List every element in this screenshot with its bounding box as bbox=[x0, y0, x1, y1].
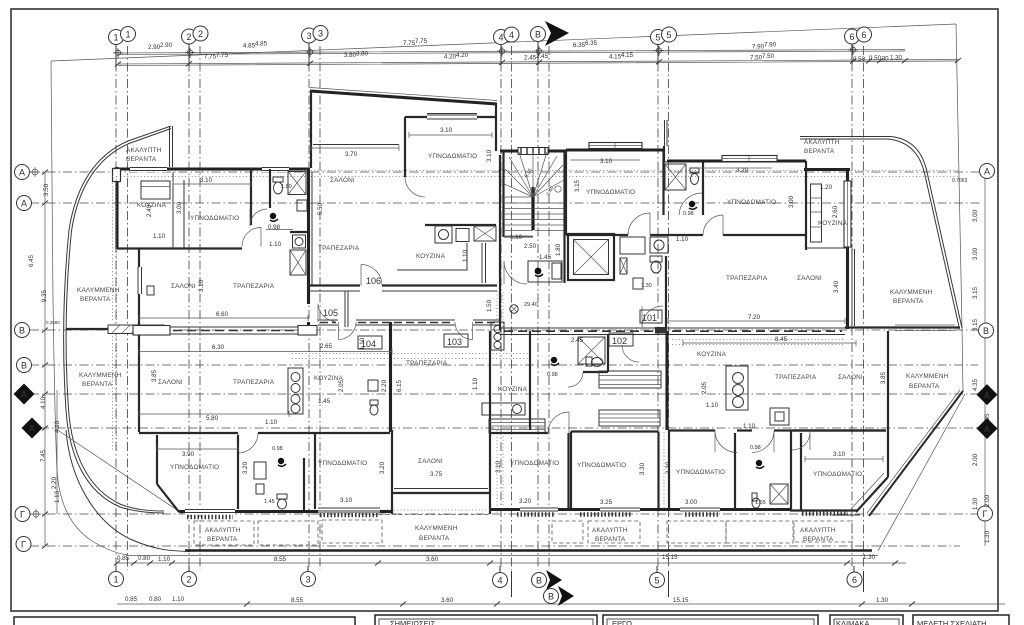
svg-text:5.50: 5.50 bbox=[317, 202, 324, 215]
svg-text:1.80: 1.80 bbox=[281, 184, 292, 190]
svg-text:8.55: 8.55 bbox=[274, 556, 287, 563]
svg-text:3.20: 3.20 bbox=[242, 461, 249, 474]
svg-text:B: B bbox=[536, 576, 542, 586]
svg-text:7.75: 7.75 bbox=[204, 54, 217, 61]
svg-text:3.15: 3.15 bbox=[972, 318, 979, 331]
svg-text:4.20: 4.20 bbox=[444, 54, 457, 61]
svg-text:7.50: 7.50 bbox=[750, 55, 763, 62]
svg-text:ΥΠΝΟΔΩΜΑΤΙΟ: ΥΠΝΟΔΩΜΑΤΙΟ bbox=[510, 460, 559, 467]
svg-text:4.20: 4.20 bbox=[456, 52, 469, 59]
svg-text:1.10: 1.10 bbox=[743, 423, 756, 430]
svg-text:29.40: 29.40 bbox=[524, 302, 538, 308]
svg-text:1.45: 1.45 bbox=[318, 398, 331, 405]
svg-text:3.80: 3.80 bbox=[344, 52, 357, 59]
svg-text:3.10: 3.10 bbox=[198, 279, 205, 292]
svg-text:ΥΠΝΟΔΩΜΑΤΙΟ: ΥΠΝΟΔΩΜΑΤΙΟ bbox=[586, 189, 635, 196]
svg-text:3.25: 3.25 bbox=[600, 499, 613, 506]
svg-text:A: A bbox=[984, 390, 990, 400]
svg-text:3.20: 3.20 bbox=[519, 498, 532, 505]
svg-text:0.50: 0.50 bbox=[853, 56, 866, 63]
svg-text:3.15: 3.15 bbox=[972, 286, 979, 299]
svg-text:B: B bbox=[19, 326, 25, 336]
svg-text:4: 4 bbox=[509, 30, 514, 40]
svg-text:ΚΑΛΥΜΜΕΝΗ: ΚΑΛΥΜΜΕΝΗ bbox=[890, 289, 933, 296]
svg-text:Γ: Γ bbox=[20, 510, 25, 520]
svg-text:ΒΕΡΑΝΤΑ: ΒΕΡΑΝΤΑ bbox=[207, 536, 238, 543]
svg-text:2.20: 2.20 bbox=[51, 476, 58, 489]
svg-text:102: 102 bbox=[612, 336, 627, 346]
svg-text:ΒΕΡΑΝΤΑ: ΒΕΡΑΝΤΑ bbox=[803, 536, 834, 543]
svg-text:1.30: 1.30 bbox=[641, 283, 652, 289]
svg-text:3.20: 3.20 bbox=[379, 461, 386, 474]
svg-text:6.30: 6.30 bbox=[212, 344, 225, 351]
svg-text:1.10: 1.10 bbox=[359, 337, 366, 350]
svg-text:6: 6 bbox=[852, 575, 857, 585]
svg-text:ΥΠΝΟΔΩΜΑΤΙΟ: ΥΠΝΟΔΩΜΑΤΙΟ bbox=[190, 215, 239, 222]
svg-text:2.90: 2.90 bbox=[148, 44, 161, 51]
svg-text:7.20: 7.20 bbox=[748, 314, 761, 321]
svg-text:ΤΡΑΠΕΖΑΡΙΑ: ΤΡΑΠΕΖΑΡΙΑ bbox=[406, 360, 448, 367]
svg-text:2.50: 2.50 bbox=[524, 243, 537, 250]
svg-text:106: 106 bbox=[366, 276, 381, 286]
svg-text:3.10: 3.10 bbox=[440, 127, 453, 134]
svg-text:1.30: 1.30 bbox=[890, 55, 903, 62]
svg-text:3.00: 3.00 bbox=[176, 201, 183, 214]
svg-text:1.50: 1.50 bbox=[486, 299, 493, 312]
svg-text:1.10: 1.10 bbox=[706, 402, 719, 409]
svg-text:2.45: 2.45 bbox=[524, 55, 537, 62]
svg-text:2.20: 2.20 bbox=[381, 379, 388, 392]
svg-text:2.00: 2.00 bbox=[984, 494, 991, 507]
svg-text:1.45: 1.45 bbox=[264, 499, 275, 505]
svg-text:7.90: 7.90 bbox=[752, 44, 765, 51]
svg-text:ΑΚΑΛΥΠΤΗ: ΑΚΑΛΥΠΤΗ bbox=[800, 527, 836, 534]
svg-text:Γ: Γ bbox=[983, 509, 988, 519]
svg-text:.30: .30 bbox=[880, 56, 889, 63]
svg-text:ΒΕΡΑΝΤΑ: ΒΕΡΑΝΤΑ bbox=[893, 298, 924, 305]
svg-text:0.80: 0.80 bbox=[138, 555, 151, 562]
svg-text:ΒΕΡΑΝΤΑ: ΒΕΡΑΝΤΑ bbox=[82, 381, 113, 388]
svg-text:8.55: 8.55 bbox=[291, 597, 304, 604]
svg-text:7.50: 7.50 bbox=[762, 53, 775, 60]
svg-text:ΥΠΝΟΔΩΜΑΤΙΟ: ΥΠΝΟΔΩΜΑΤΙΟ bbox=[813, 471, 862, 478]
svg-text:ΤΡΑΠΕΖΑΡΙΑ: ΤΡΑΠΕΖΑΡΙΑ bbox=[726, 275, 768, 282]
svg-text:0.85: 0.85 bbox=[117, 555, 130, 562]
svg-text:6.45: 6.45 bbox=[28, 254, 35, 267]
svg-text:A: A bbox=[21, 199, 27, 209]
svg-text:ΑΚΑΛΥΠΤΗ: ΑΚΑΛΥΠΤΗ bbox=[592, 527, 628, 534]
svg-text:ΒΕΡΑΝΤΑ: ΒΕΡΑΝΤΑ bbox=[595, 536, 626, 543]
svg-text:3.00: 3.00 bbox=[972, 247, 979, 260]
svg-text:3.50: 3.50 bbox=[43, 183, 50, 196]
svg-text:1.10: 1.10 bbox=[153, 233, 166, 240]
svg-text:ΤΡΑΠΕΖΑΡΙΑ: ΤΡΑΠΕΖΑΡΙΑ bbox=[775, 374, 817, 381]
svg-text:A: A bbox=[19, 168, 25, 178]
svg-text:5.80: 5.80 bbox=[206, 415, 219, 422]
svg-text:6.15: 6.15 bbox=[396, 379, 403, 392]
svg-text:ΥΠΝΟΔΩΜΑΤΙΟ: ΥΠΝΟΔΩΜΑΤΙΟ bbox=[727, 199, 776, 206]
svg-text:3.10: 3.10 bbox=[833, 451, 846, 458]
svg-text:4.35: 4.35 bbox=[972, 378, 979, 391]
svg-text:1.10: 1.10 bbox=[269, 241, 282, 248]
svg-text:ΣΗΜΕΙΩΣΕΙΣ: ΣΗΜΕΙΩΣΕΙΣ bbox=[390, 619, 436, 625]
svg-text:A: A bbox=[21, 389, 27, 399]
svg-text:2.60: 2.60 bbox=[832, 205, 839, 218]
svg-text:ΥΠΝΟΔΩΜΑΤΙΟ: ΥΠΝΟΔΩΜΑΤΙΟ bbox=[428, 153, 477, 160]
svg-text:3.80: 3.80 bbox=[356, 51, 369, 58]
svg-text:3.60: 3.60 bbox=[426, 556, 439, 563]
svg-text:103: 103 bbox=[447, 337, 462, 347]
svg-text:ΣΑΛΟΝΙ: ΣΑΛΟΝΙ bbox=[838, 374, 863, 381]
svg-text:3.00: 3.00 bbox=[788, 195, 795, 208]
svg-text:ΒΕΡΑΝΤΑ: ΒΕΡΑΝΤΑ bbox=[804, 148, 835, 155]
svg-text:ΣΑΛΟΝΙ: ΣΑΛΟΝΙ bbox=[797, 275, 822, 282]
svg-text:3.85: 3.85 bbox=[880, 371, 887, 384]
svg-text:105: 105 bbox=[323, 308, 338, 318]
svg-text:3.10: 3.10 bbox=[600, 158, 613, 165]
svg-text:5: 5 bbox=[666, 30, 671, 40]
svg-text:4.15: 4.15 bbox=[621, 52, 634, 59]
svg-text:ΥΠΝΟΔΩΜΑΤΙΟ: ΥΠΝΟΔΩΜΑΤΙΟ bbox=[170, 464, 219, 471]
svg-text:0.2580: 0.2580 bbox=[46, 320, 60, 325]
svg-text:2.05: 2.05 bbox=[701, 381, 708, 394]
svg-text:7.75: 7.75 bbox=[415, 38, 428, 45]
svg-text:4.10: 4.10 bbox=[40, 396, 47, 409]
svg-text:3.20: 3.20 bbox=[665, 461, 672, 474]
svg-text:1.10: 1.10 bbox=[265, 419, 278, 426]
svg-text:ΚΟΥΖΙΝΑ: ΚΟΥΖΙΝΑ bbox=[818, 220, 848, 227]
svg-text:B: B bbox=[548, 592, 554, 602]
svg-text:ΚΟΥΖΙΝΑ: ΚΟΥΖΙΝΑ bbox=[697, 351, 727, 358]
svg-text:7.90: 7.90 bbox=[764, 42, 777, 49]
svg-text:ΜΕΛΕΤΗ ΣΧΕΔΙΑΤΗ: ΜΕΛΕΤΗ ΣΧΕΔΙΑΤΗ bbox=[917, 619, 987, 625]
svg-text:3: 3 bbox=[318, 29, 323, 39]
svg-text:ΚΑΛΥΜΜΕΝΗ: ΚΑΛΥΜΜΕΝΗ bbox=[906, 373, 949, 380]
svg-text:ΕΡΓΟ: ΕΡΓΟ bbox=[612, 619, 632, 625]
svg-text:4.15: 4.15 bbox=[609, 54, 622, 61]
svg-text:ΚΑΛΥΜΜΕΝΗ: ΚΑΛΥΜΜΕΝΗ bbox=[77, 287, 120, 294]
svg-text:1.20: 1.20 bbox=[820, 184, 833, 191]
svg-text:3.10: 3.10 bbox=[495, 460, 502, 473]
svg-text:0.85: 0.85 bbox=[125, 596, 138, 603]
svg-text:1.80: 1.80 bbox=[555, 243, 562, 256]
svg-text:2.05: 2.05 bbox=[338, 379, 345, 392]
svg-text:ΤΡΑΠΕΖΑΡΙΑ: ΤΡΑΠΕΖΑΡΙΑ bbox=[318, 245, 360, 252]
svg-text:5: 5 bbox=[654, 576, 659, 586]
svg-text:1: 1 bbox=[113, 33, 118, 43]
svg-text:ΑΚΑΛΥΠΤΗ: ΑΚΑΛΥΠΤΗ bbox=[126, 147, 162, 154]
svg-text:B: B bbox=[983, 326, 989, 336]
svg-text:ΒΕΡΑΝΤΑ: ΒΕΡΑΝΤΑ bbox=[80, 296, 111, 303]
svg-text:ΣΑΛΟΝΙ: ΣΑΛΟΝΙ bbox=[418, 458, 443, 465]
svg-text:B: B bbox=[535, 30, 541, 40]
svg-text:0.7063: 0.7063 bbox=[952, 178, 968, 184]
svg-text:6.35: 6.35 bbox=[585, 40, 598, 47]
svg-text:2: 2 bbox=[186, 575, 191, 585]
svg-text:2: 2 bbox=[198, 29, 203, 39]
svg-text:3.30: 3.30 bbox=[639, 462, 646, 475]
svg-text:1: 1 bbox=[113, 575, 118, 585]
svg-text:101: 101 bbox=[642, 313, 657, 323]
svg-text:3.85: 3.85 bbox=[151, 369, 158, 382]
svg-text:4.85: 4.85 bbox=[243, 43, 256, 50]
svg-text:3.70: 3.70 bbox=[345, 151, 358, 158]
svg-text:2.90: 2.90 bbox=[160, 42, 173, 49]
svg-text:2: 2 bbox=[186, 32, 191, 42]
svg-text:7.75: 7.75 bbox=[403, 40, 416, 47]
svg-text:ΒΕΡΑΝΤΑ: ΒΕΡΑΝΤΑ bbox=[126, 156, 157, 163]
svg-text:1.10: 1.10 bbox=[54, 490, 61, 503]
svg-text:ΒΕΡΑΝΤΑ: ΒΕΡΑΝΤΑ bbox=[909, 383, 940, 390]
svg-text:1.10: 1.10 bbox=[510, 234, 523, 241]
svg-text:6.60: 6.60 bbox=[216, 311, 229, 318]
svg-text:1: 1 bbox=[125, 30, 130, 40]
svg-text:A: A bbox=[29, 423, 35, 433]
svg-text:4: 4 bbox=[497, 576, 502, 586]
svg-text:6: 6 bbox=[849, 32, 854, 42]
svg-text:0.80: 0.80 bbox=[149, 596, 162, 603]
svg-text:3.40: 3.40 bbox=[833, 280, 840, 293]
svg-text:3.10: 3.10 bbox=[340, 497, 353, 504]
svg-text:ΚΟΥΖΙΝΑ: ΚΟΥΖΙΝΑ bbox=[416, 253, 446, 260]
svg-text:15.15: 15.15 bbox=[673, 597, 689, 604]
svg-text:ΥΠΝΟΔΩΜΑΤΙΟ: ΥΠΝΟΔΩΜΑΤΙΟ bbox=[676, 469, 725, 476]
svg-text:1.10: 1.10 bbox=[158, 556, 171, 563]
svg-text:3.10: 3.10 bbox=[200, 177, 213, 184]
svg-text:3.10: 3.10 bbox=[486, 149, 493, 162]
svg-text:A: A bbox=[984, 424, 990, 434]
svg-text:5: 5 bbox=[655, 33, 660, 43]
svg-text:3: 3 bbox=[305, 575, 310, 585]
svg-text:3.90: 3.90 bbox=[182, 451, 195, 458]
svg-text:3.60: 3.60 bbox=[441, 597, 454, 604]
svg-text:6: 6 bbox=[861, 30, 866, 40]
svg-text:4.10: 4.10 bbox=[54, 420, 61, 433]
svg-text:0.98: 0.98 bbox=[268, 224, 281, 231]
svg-text:Γ: Γ bbox=[21, 540, 26, 550]
svg-text:3.00: 3.00 bbox=[972, 209, 979, 222]
svg-text:ΒΕΡΑΝΤΑ: ΒΕΡΑΝΤΑ bbox=[419, 535, 450, 542]
svg-text:7.75: 7.75 bbox=[216, 52, 229, 59]
svg-text:ΚΟΥΖΙΝΑ: ΚΟΥΖΙΝΑ bbox=[498, 386, 528, 393]
svg-text:1.30: 1.30 bbox=[863, 554, 876, 561]
svg-text:A: A bbox=[984, 167, 990, 177]
svg-text:8.45: 8.45 bbox=[775, 336, 788, 343]
svg-text:ΚΛΙΜΑΚΑ: ΚΛΙΜΑΚΑ bbox=[836, 619, 869, 625]
svg-text:0.98: 0.98 bbox=[750, 445, 761, 451]
svg-text:ΚΑΛΥΜΜΕΝΗ: ΚΑΛΥΜΜΕΝΗ bbox=[79, 372, 122, 379]
svg-text:2.45: 2.45 bbox=[571, 337, 584, 344]
svg-text:9.35: 9.35 bbox=[41, 289, 48, 302]
svg-text:ΑΚΑΛΥΠΤΗ: ΑΚΑΛΥΠΤΗ bbox=[804, 139, 840, 146]
svg-text:ΥΠΝΟΔΩΜΑΤΙΟ: ΥΠΝΟΔΩΜΑΤΙΟ bbox=[577, 462, 626, 469]
svg-text:15.15: 15.15 bbox=[662, 554, 678, 561]
svg-text:ΣΑΛΟΝΙ: ΣΑΛΟΝΙ bbox=[171, 283, 196, 290]
svg-text:B: B bbox=[21, 361, 27, 371]
svg-text:ΥΠΝΟΔΩΜΑΤΙΟ: ΥΠΝΟΔΩΜΑΤΙΟ bbox=[318, 460, 367, 467]
svg-text:4.85: 4.85 bbox=[255, 41, 268, 48]
svg-text:ΣΑΛΟΝΙ: ΣΑΛΟΝΙ bbox=[158, 379, 183, 386]
svg-text:2.00: 2.00 bbox=[972, 453, 979, 466]
svg-text:1.30: 1.30 bbox=[972, 497, 979, 510]
svg-text:1.10: 1.10 bbox=[472, 377, 479, 390]
svg-text:6.35: 6.35 bbox=[573, 42, 586, 49]
svg-text:ΤΡΑΠΕΖΑΡΙΑ: ΤΡΑΠΕΖΑΡΙΑ bbox=[233, 283, 275, 290]
svg-text:1.30: 1.30 bbox=[984, 530, 991, 543]
svg-text:3: 3 bbox=[306, 31, 311, 41]
svg-text:1.65: 1.65 bbox=[755, 500, 766, 506]
svg-text:2.40: 2.40 bbox=[146, 204, 153, 217]
svg-text:ΣΑΛΟΝΙ: ΣΑΛΟΝΙ bbox=[330, 177, 355, 184]
svg-text:3.75: 3.75 bbox=[430, 471, 443, 478]
svg-text:ΤΡΑΠΕΖΑΡΙΑ: ΤΡΑΠΕΖΑΡΙΑ bbox=[233, 379, 275, 386]
svg-text:4: 4 bbox=[498, 33, 503, 43]
svg-text:ΚΑΛΥΜΜΕΝΗ: ΚΑΛΥΜΜΕΝΗ bbox=[415, 525, 458, 532]
svg-text:1.10: 1.10 bbox=[172, 596, 185, 603]
svg-text:7.45: 7.45 bbox=[40, 449, 47, 462]
svg-text:0.98: 0.98 bbox=[683, 211, 694, 217]
svg-text:1.30: 1.30 bbox=[876, 597, 889, 604]
svg-text:2.45: 2.45 bbox=[536, 53, 549, 60]
svg-text:0.98: 0.98 bbox=[547, 372, 558, 378]
svg-text:2.65: 2.65 bbox=[320, 343, 333, 350]
svg-text:1.10: 1.10 bbox=[676, 236, 689, 243]
svg-text:3.15: 3.15 bbox=[574, 179, 581, 192]
svg-text:1.10: 1.10 bbox=[462, 249, 469, 262]
svg-text:0.98: 0.98 bbox=[272, 446, 283, 452]
svg-text:1.45: 1.45 bbox=[539, 254, 552, 261]
svg-text:3.00: 3.00 bbox=[685, 499, 698, 506]
svg-text:ΑΚΑΛΥΠΤΗ: ΑΚΑΛΥΠΤΗ bbox=[205, 527, 241, 534]
